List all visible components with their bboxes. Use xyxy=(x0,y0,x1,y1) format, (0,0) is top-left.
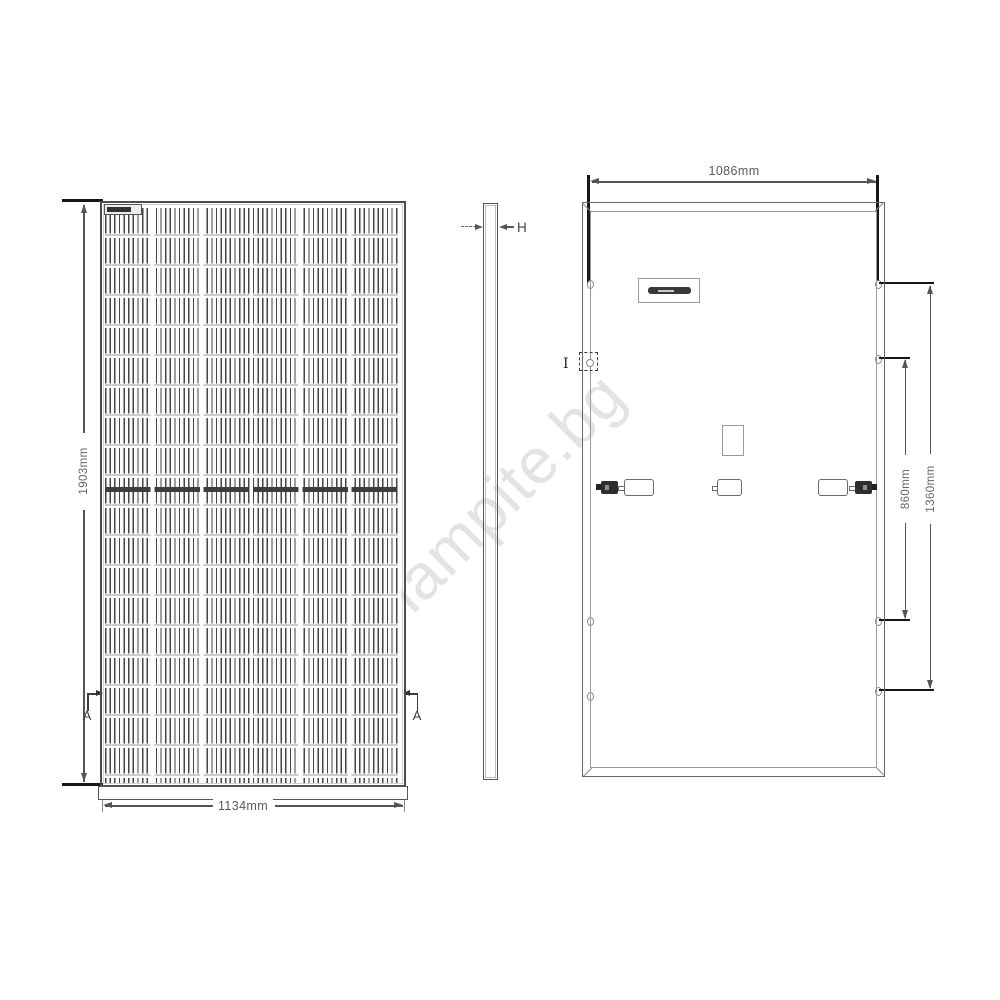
mount-dim-tick xyxy=(879,282,934,285)
outer-mount-arrow-up xyxy=(927,285,933,294)
width-dim-arrow-left xyxy=(103,802,112,808)
cable-gland-center xyxy=(717,479,742,496)
inner-mount-arrow-down xyxy=(902,610,908,619)
junction-box-label xyxy=(638,278,700,303)
side-view-inner-edge xyxy=(485,205,496,778)
mc4-connector-left xyxy=(601,481,618,494)
inner-mount-arrow-up xyxy=(902,359,908,368)
height-dim-arrow-down xyxy=(81,773,87,782)
outer-mount-arrow-down xyxy=(927,680,933,689)
mount-dim-tick xyxy=(879,689,934,692)
outer-mount-dim-line-lower xyxy=(930,524,931,688)
back-width-dimension-label: 1086mm xyxy=(703,163,764,179)
width-dim-line-left xyxy=(105,805,213,807)
cable-gland-left xyxy=(624,479,654,496)
module-sticker xyxy=(104,204,142,215)
height-dim-arrow-up xyxy=(81,204,87,213)
width-dim-line-right xyxy=(275,805,403,807)
height-dim-line-lower xyxy=(83,510,85,782)
side-view-profile xyxy=(483,203,498,780)
back-width-arrow-right xyxy=(867,178,876,184)
width-dim-arrow-right xyxy=(394,802,403,808)
thickness-dim-arrow-right xyxy=(475,224,483,230)
module-sticker-bar xyxy=(107,207,131,212)
thickness-dim-arrow-left xyxy=(499,224,507,230)
junction-box-slot xyxy=(658,290,674,292)
height-dim-tick-bottom xyxy=(62,783,103,786)
section-label-left: A xyxy=(80,708,94,723)
height-dimension-label: 1903mm xyxy=(77,442,91,499)
technical-drawing-canvas: lampite.bg 1903mm A A 1134mm H xyxy=(0,0,1000,1000)
thickness-dim-dash-left xyxy=(461,226,476,227)
cell-divider-band xyxy=(105,487,401,492)
mc4-slot-left xyxy=(605,485,609,490)
back-width-dim-line xyxy=(592,181,876,183)
cable-gland-right xyxy=(818,479,848,496)
connector-tip-right xyxy=(872,484,877,490)
inner-mount-dim-line-upper xyxy=(905,360,906,455)
grounding-hole xyxy=(586,359,594,367)
width-dimension-label: 1134mm xyxy=(213,798,273,814)
thickness-dimension-label: H xyxy=(517,220,527,235)
nameplate-rect xyxy=(722,425,744,456)
inner-mounting-dimension-label: 860mm xyxy=(899,464,913,514)
back-width-arrow-left xyxy=(590,178,599,184)
front-cell-grid xyxy=(105,208,401,783)
grounding-hole-label: I xyxy=(563,356,569,372)
outer-mounting-dimension-label: 1360mm xyxy=(924,460,938,517)
section-label-right: A xyxy=(410,708,424,723)
height-dim-line-upper xyxy=(83,205,85,433)
mc4-slot-right xyxy=(863,485,867,490)
height-dim-tick-top xyxy=(62,199,103,202)
outer-mount-dim-line-upper xyxy=(930,286,931,454)
inner-mount-dim-line-lower xyxy=(905,523,906,618)
